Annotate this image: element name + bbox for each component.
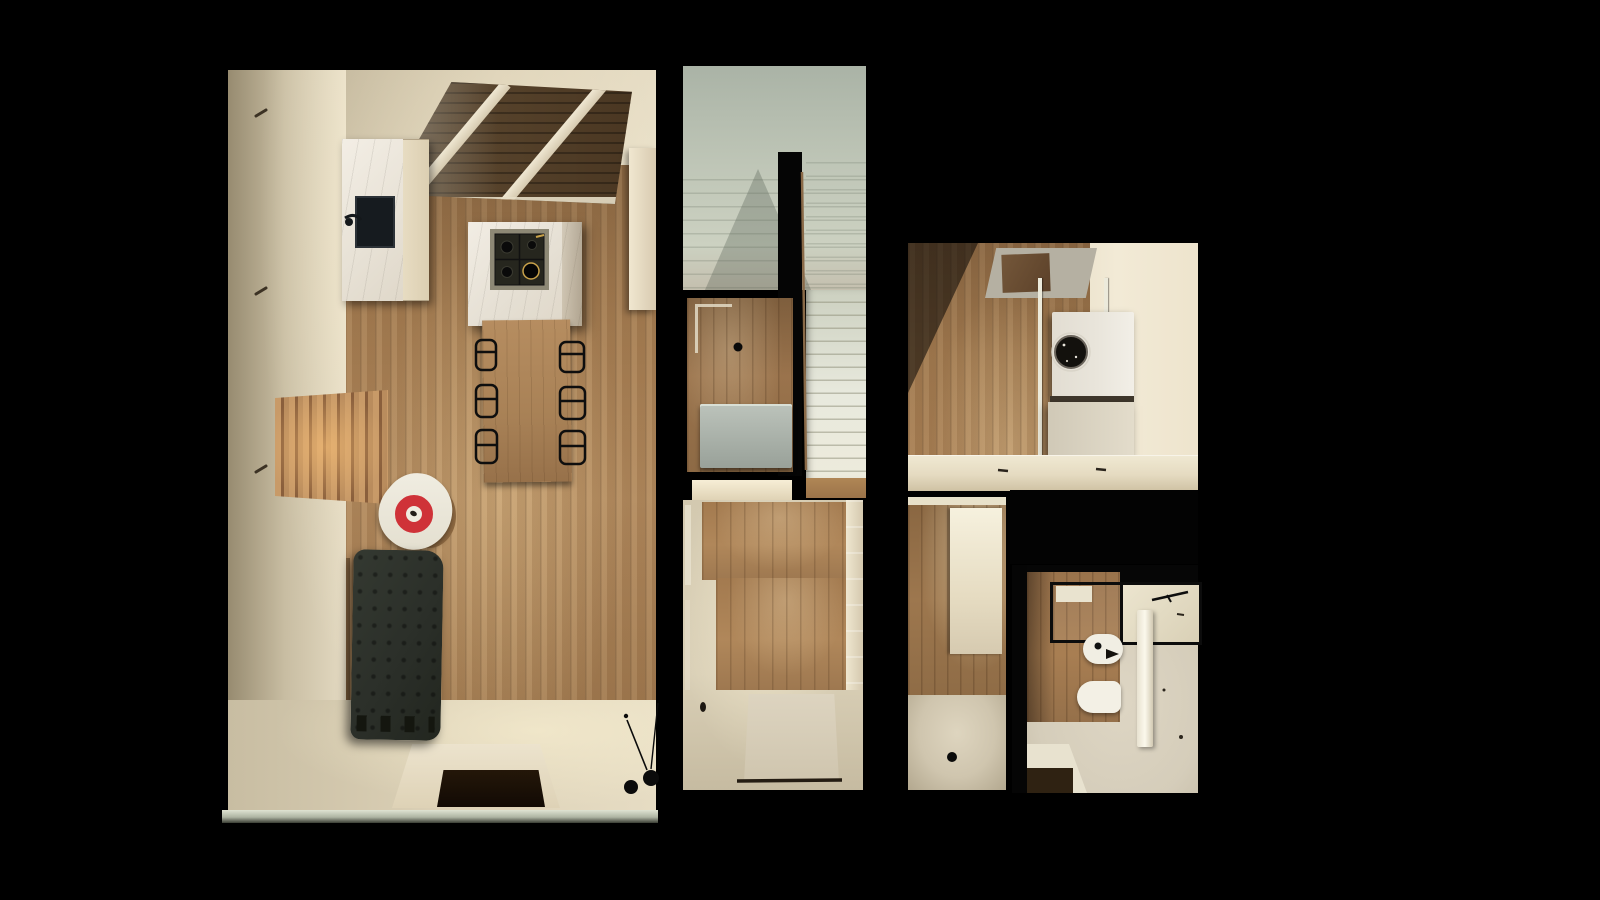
room-bathroom xyxy=(0,0,1600,900)
stair-landing-wood xyxy=(806,478,866,498)
floor-opening-dark xyxy=(437,770,545,807)
wardrobe-pole xyxy=(1104,278,1108,456)
dining-chairs xyxy=(476,340,585,464)
detail-overlay xyxy=(0,0,1600,900)
armchair-wood-base xyxy=(402,484,456,548)
corridor-wood-wall xyxy=(908,505,1006,695)
sofa-wood-frame xyxy=(346,558,350,700)
wardrobe-pole xyxy=(1038,278,1042,456)
glass-balustrade-edge xyxy=(222,810,658,823)
hallway-closet-front xyxy=(846,500,863,690)
chaise-sofa xyxy=(350,549,443,741)
counter-handles xyxy=(998,469,1106,471)
hallway-wood-floor xyxy=(716,578,856,690)
bathroom-wood-floor xyxy=(1027,572,1120,722)
armchair-center-mark xyxy=(409,510,417,517)
washer-door xyxy=(1052,333,1090,371)
walkin-ceiling-opening-inner xyxy=(1001,253,1050,293)
bathroom-floor xyxy=(1012,565,1198,793)
bathroom-top-wall xyxy=(1027,565,1198,582)
kitchen-island xyxy=(468,222,582,326)
room-walk-in-laundry xyxy=(0,0,1600,900)
ceiling-beam xyxy=(490,82,608,204)
under-stair-room xyxy=(687,298,793,472)
stair-partition-wall xyxy=(778,152,802,476)
wood-slat-panel xyxy=(275,390,388,504)
hallway-wall-glint xyxy=(685,505,691,585)
walkin-ceiling-opening xyxy=(985,248,1097,298)
bathroom-corner-counter xyxy=(1027,744,1087,793)
living-wood-floor xyxy=(345,165,656,705)
shower-glass-screen xyxy=(1050,582,1126,643)
room-stairwell xyxy=(0,0,1600,900)
under-stair-cabinet xyxy=(700,404,792,468)
hall-floor-object xyxy=(700,702,706,712)
bathroom-partition-wall xyxy=(1137,610,1153,747)
hallway-wood-floor xyxy=(702,502,858,580)
room-living-kitchen xyxy=(0,0,1600,900)
living-room-floor-walls xyxy=(228,70,656,822)
floor-lamp xyxy=(624,703,659,794)
ceiling-beam xyxy=(392,82,510,204)
entry-doormat xyxy=(744,694,839,782)
hallway-floor xyxy=(683,500,863,790)
black-built-in-volume xyxy=(1010,490,1198,564)
toilet xyxy=(1077,681,1121,713)
dining-table xyxy=(482,320,572,483)
ceiling-dot xyxy=(734,343,743,352)
room-entry-hall xyxy=(0,0,1600,900)
corridor-floor-dot xyxy=(947,752,957,762)
stair-railing xyxy=(802,172,806,470)
living-ceiling-opening xyxy=(388,82,632,204)
bath-mat xyxy=(1027,768,1073,793)
corridor-floor xyxy=(908,695,1006,790)
washer-cube-lower xyxy=(1048,402,1134,456)
stairwell-glazing xyxy=(683,66,866,290)
floor-opening-frame xyxy=(392,744,560,808)
stair-treads-upper xyxy=(806,150,866,290)
bidet xyxy=(1083,634,1123,664)
staircase xyxy=(806,290,866,480)
washer-cube-gap xyxy=(1050,396,1134,402)
walkin-wood-floor xyxy=(908,243,1090,490)
kitchen-tall-cabinet xyxy=(629,148,656,310)
gas-cooktop xyxy=(490,229,549,290)
sink-faucet-icon xyxy=(345,215,361,226)
armchair-seat xyxy=(364,460,468,565)
armchair-red-ring xyxy=(395,495,433,533)
washer-cube xyxy=(1052,312,1134,398)
armchair-red-cushion xyxy=(372,470,460,558)
bathroom-left-wall xyxy=(1012,565,1027,793)
wall-spotlights xyxy=(256,110,266,472)
lit-threshold xyxy=(692,480,792,502)
apartment-floorplan-render xyxy=(0,0,1600,900)
corridor-counter-lip xyxy=(908,497,1006,507)
built-in-counter xyxy=(908,455,1198,491)
living-lower-tile-floor xyxy=(228,700,656,822)
room-corridor xyxy=(0,0,1600,900)
shower-bench xyxy=(1056,586,1092,602)
hallway-wall-glint xyxy=(685,600,690,690)
door-threshold-line xyxy=(737,780,842,781)
vanity-glass-screen xyxy=(1120,582,1202,645)
living-left-wall xyxy=(228,70,346,822)
bathroom-details xyxy=(1095,592,1189,739)
walkin-walls xyxy=(908,243,1198,490)
kitchen-sink xyxy=(355,196,395,248)
kitchen-sink-cabinet xyxy=(342,139,429,301)
room-under-stair xyxy=(0,0,1600,900)
corridor-white-door xyxy=(950,508,1002,654)
